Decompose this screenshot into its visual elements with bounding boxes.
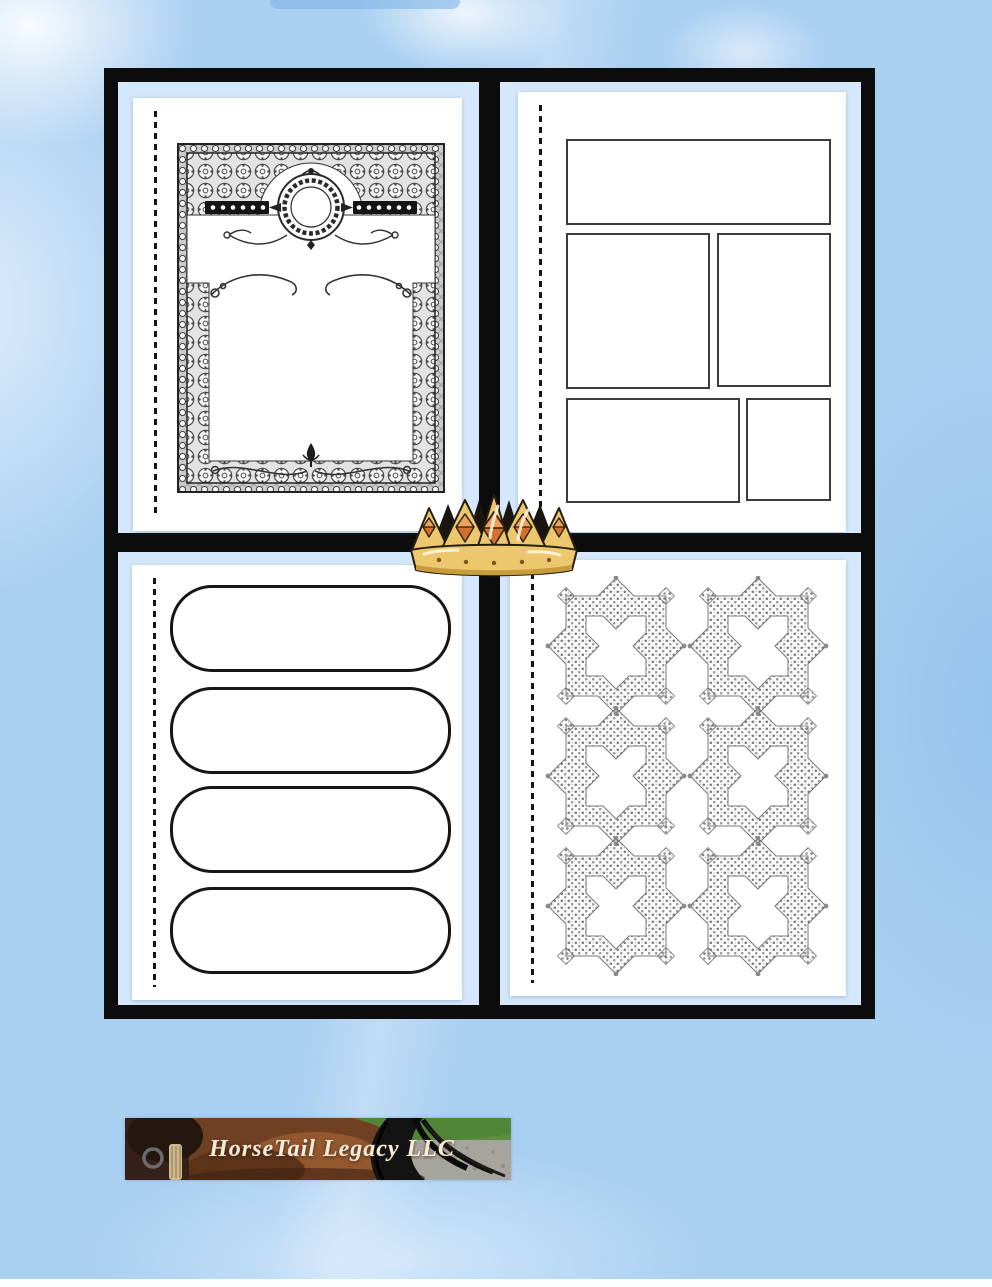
- watercolor-streak: [270, 0, 460, 9]
- layout-box-top: [566, 139, 831, 225]
- layout-box-middle-left: [566, 233, 710, 389]
- certificate-template-page: [133, 98, 462, 531]
- label-strip: [170, 585, 451, 672]
- ornament-frames-template-page: [510, 560, 846, 996]
- label-strips-template-page: [132, 565, 462, 1000]
- label-strip: [170, 887, 451, 974]
- template-cell-top-right: [500, 82, 861, 533]
- ornament-frame: [685, 706, 831, 846]
- brand-banner: HorseTail Legacy LLC: [125, 1118, 511, 1180]
- binding-guide-line: [531, 573, 534, 983]
- crown-icon: [408, 494, 580, 578]
- ornament-frame: [543, 576, 689, 716]
- label-strip: [170, 687, 451, 774]
- watercolor-background: HorseTail Legacy LLC: [0, 0, 992, 1287]
- layout-box-bottom-right: [746, 398, 831, 501]
- ornament-frame: [685, 576, 831, 716]
- template-cell-top-left: [118, 82, 479, 533]
- template-cell-bottom-right: [500, 552, 861, 1005]
- template-cell-bottom-left: [118, 552, 479, 1005]
- ornament-frame: [685, 836, 831, 976]
- binding-guide-line: [153, 578, 156, 987]
- binding-guide-line: [539, 105, 542, 519]
- binding-guide-line: [154, 111, 157, 518]
- layout-template-page: [518, 92, 846, 532]
- brand-banner-title: HorseTail Legacy LLC: [125, 1118, 511, 1180]
- ornate-border-frame: [177, 143, 445, 493]
- ornament-frame: [543, 706, 689, 846]
- layout-box-middle-right: [717, 233, 831, 387]
- layout-box-bottom-left: [566, 398, 740, 503]
- watercolor-highlight: [0, 1279, 992, 1287]
- label-strip: [170, 786, 451, 873]
- ornament-frame: [543, 836, 689, 976]
